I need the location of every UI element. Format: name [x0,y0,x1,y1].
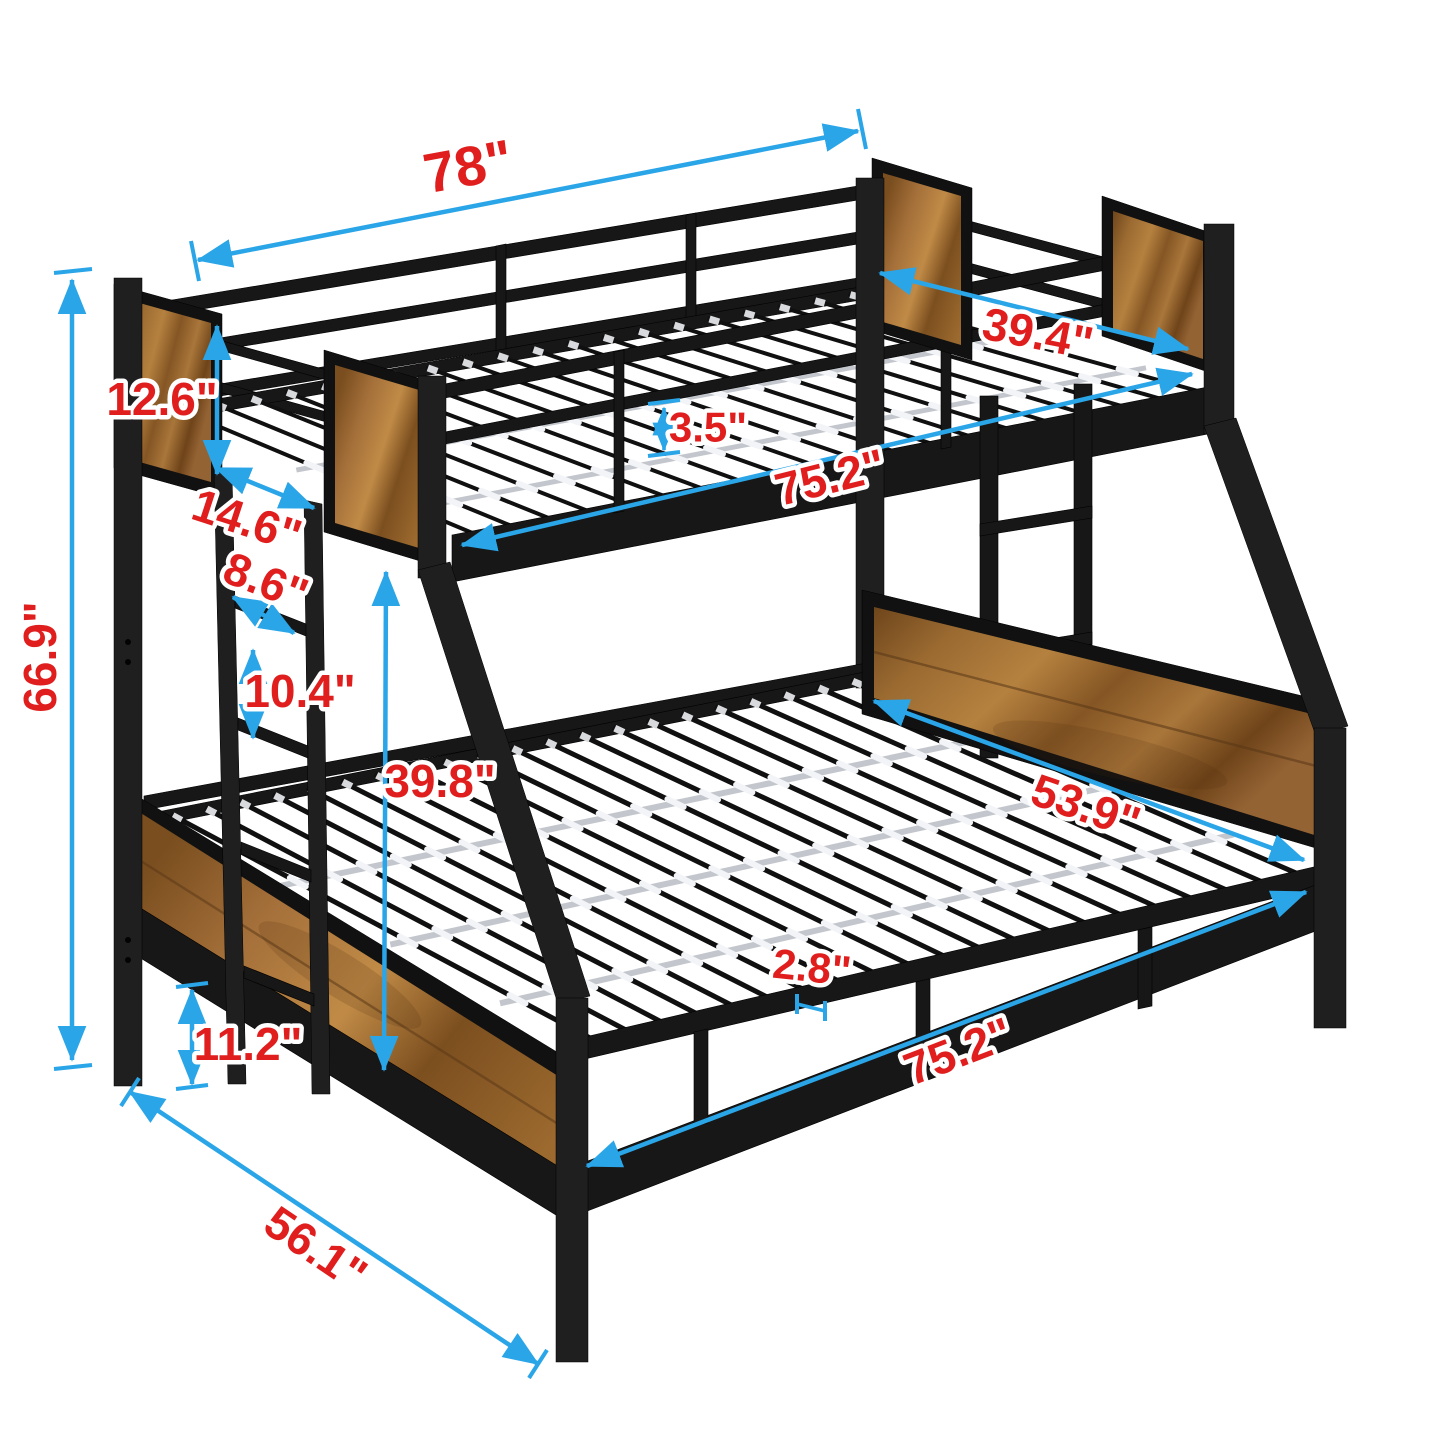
dim-label-top-panel-height: 12.6" [106,373,217,425]
dimension-ladder-rung-spacing: 10.4" [244,650,355,738]
diagram-canvas: 78" 66.9" 12.6" 14.6" 8.6" 10.4" 39.8" [0,0,1445,1445]
dim-label-ladder-rung-spacing: 10.4" [244,665,355,717]
dim-label-bunk-clearance: 39.8" [384,755,495,807]
bunk-bed-dimension-diagram: 78" 66.9" 12.6" 14.6" 8.6" 10.4" 39.8" [0,0,1445,1445]
dim-label-overall-height: 66.9" [14,601,66,712]
dim-label-guardrail-gap: 3.5" [669,404,747,451]
dimension-overall-height: 66.9" [14,269,92,1069]
dim-label-top-bed-width: 39.4" [978,297,1097,369]
dim-label-bottom-frame-height: 11.2" [194,1018,303,1070]
dimension-guardrail-gap: 3.5" [648,400,747,456]
dim-label-bottom-bed-length: 75.2" [897,1007,1020,1095]
dim-label-overall-depth: 56.1" [255,1195,376,1300]
dim-label-top-frame-length: 78" [419,127,518,205]
dim-label-slat-spacing: 2.8" [771,940,854,995]
